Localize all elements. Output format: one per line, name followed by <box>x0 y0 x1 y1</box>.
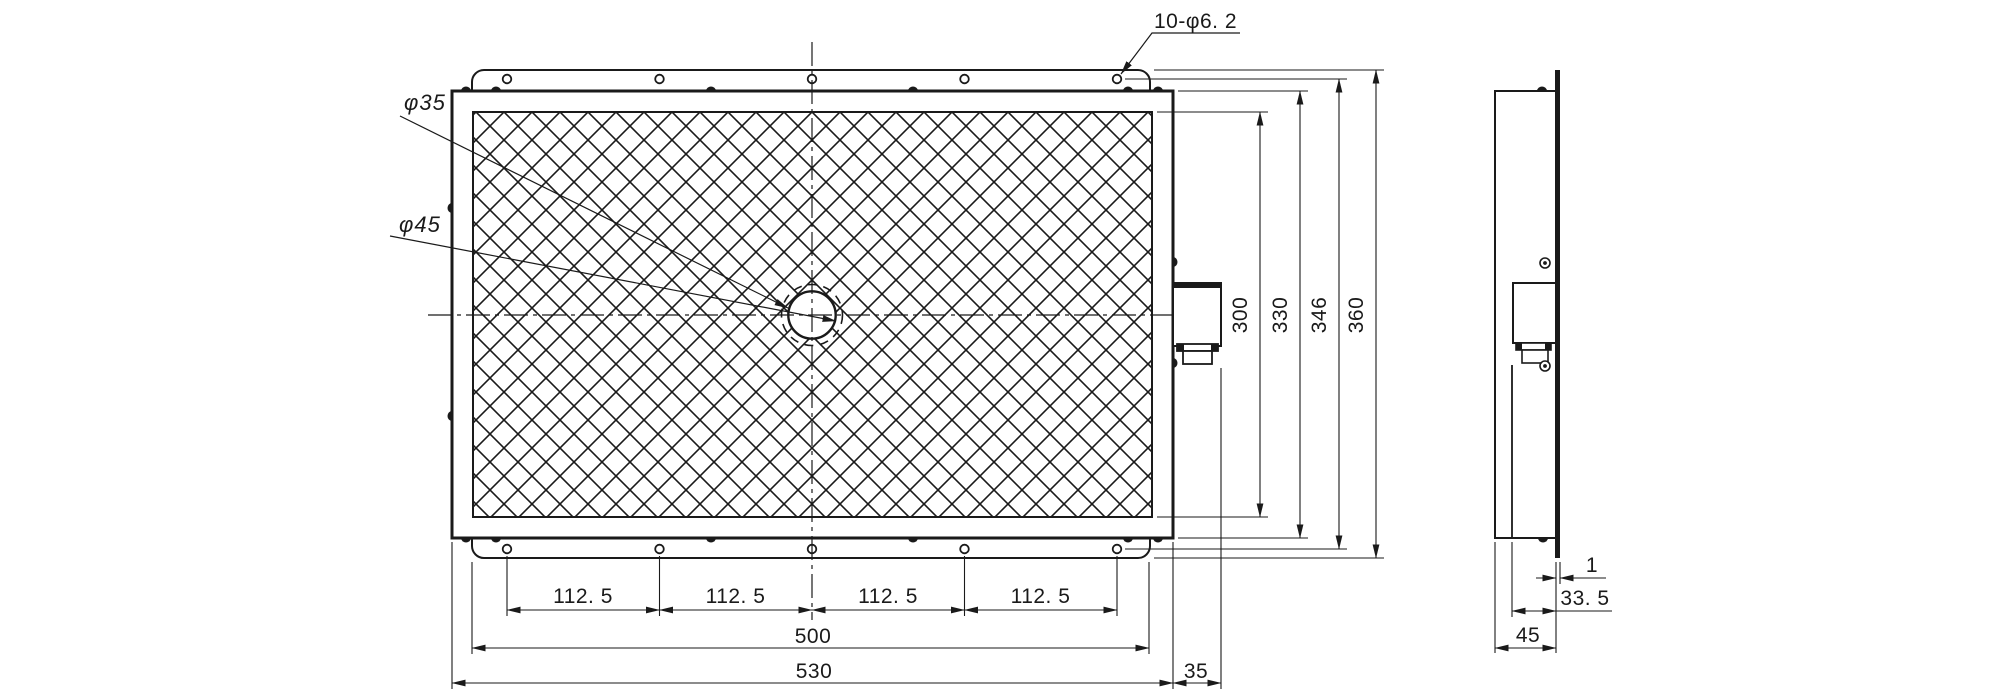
dim-protrusion-depth: 35 <box>1184 660 1208 683</box>
dim-flange-width: 500 <box>795 625 832 648</box>
connector-nozzle <box>1183 351 1212 364</box>
dim-flange-height: 360 <box>1345 297 1368 334</box>
dim-mesh-height: 300 <box>1229 297 1252 334</box>
dim-pitch-2: 112. 5 <box>706 585 766 608</box>
dim-pitch-3: 112. 5 <box>858 585 918 608</box>
hole-note-label: 10-φ6. 2 <box>1154 10 1237 33</box>
mounting-hole <box>960 75 969 84</box>
dia35-label: φ35 <box>404 90 446 115</box>
dia45-label: φ45 <box>399 212 441 237</box>
mounting-hole <box>655 545 664 554</box>
filter-panel-drawing: 300 330 346 360 112. 5 112. 5 112. 5 112… <box>0 0 2000 700</box>
dim-pitch-4: 112. 5 <box>1011 585 1071 608</box>
mounting-hole <box>503 545 512 554</box>
mounting-hole <box>1113 75 1122 84</box>
dim-pitch-1: 112. 5 <box>553 585 613 608</box>
dim-flange-thickness: 1 <box>1586 554 1598 577</box>
dim-panel-height: 330 <box>1269 297 1292 334</box>
mounting-hole <box>1113 545 1122 554</box>
side-screw-bottom <box>1540 361 1550 371</box>
dim-overall-depth: 45 <box>1516 624 1540 647</box>
dim-flange-offset: 33. 5 <box>1560 587 1609 610</box>
leader-hole-note <box>1121 33 1240 74</box>
connector-box <box>1173 283 1221 364</box>
mounting-hole <box>655 75 664 84</box>
dim-overall-width: 530 <box>796 660 833 683</box>
mounting-hole <box>960 545 969 554</box>
dim-hole-pitch-height: 346 <box>1308 297 1331 334</box>
front-view <box>428 42 1221 620</box>
side-view <box>1495 70 1560 558</box>
mounting-hole <box>503 75 512 84</box>
technical-drawing-sheet: 300 330 346 360 112. 5 112. 5 112. 5 112… <box>0 0 2000 700</box>
